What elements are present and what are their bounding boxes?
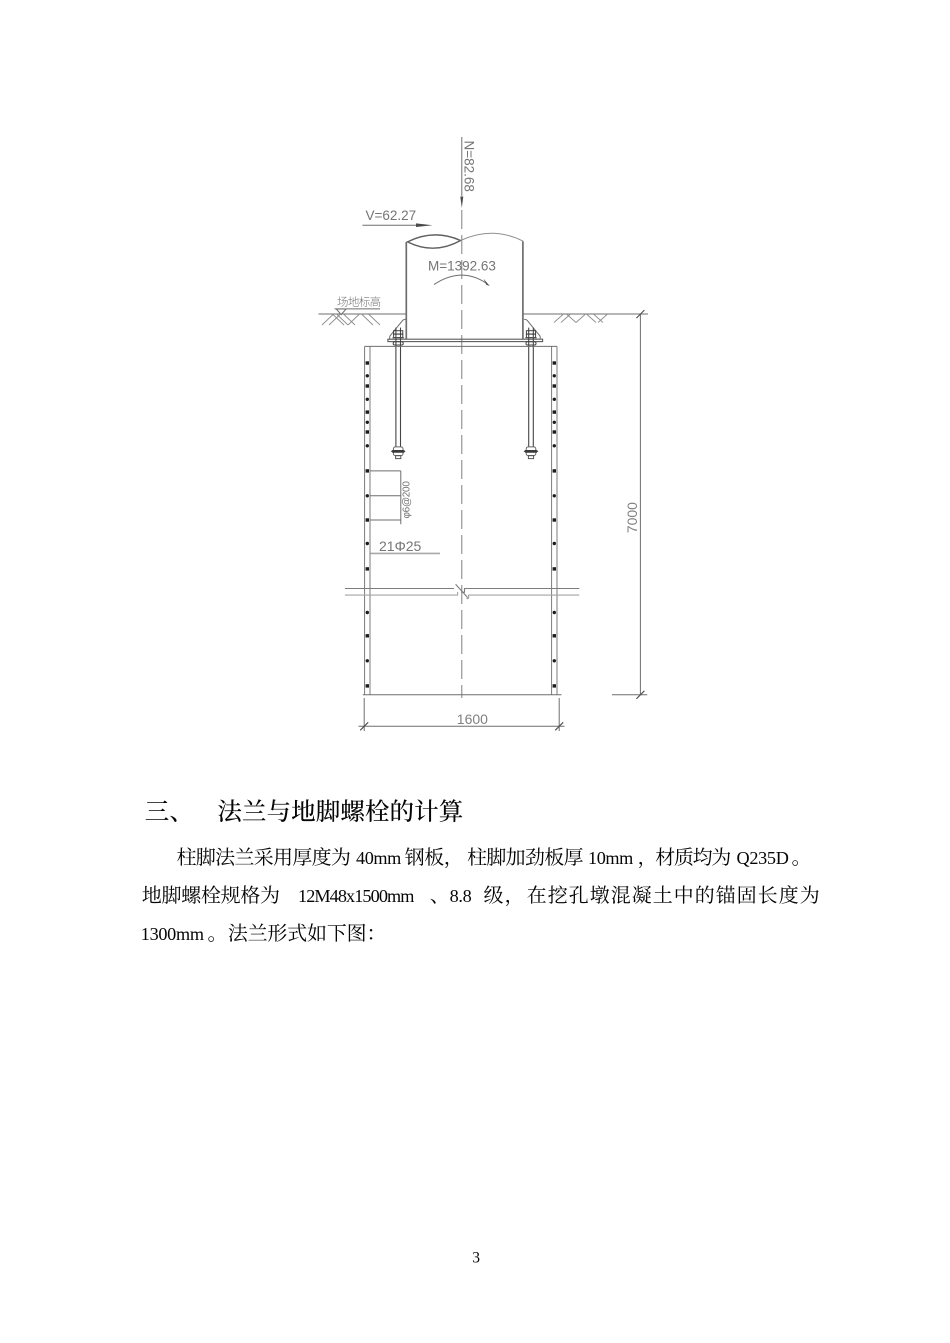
svg-text:8.8: 8.8: [450, 886, 472, 906]
svg-text:φ6@200: φ6@200: [401, 481, 412, 519]
svg-text:40mm: 40mm: [356, 848, 401, 868]
svg-text:V=62.27: V=62.27: [366, 208, 417, 223]
svg-text:N=82.68: N=82.68: [462, 141, 477, 192]
svg-text:Q235D: Q235D: [737, 848, 789, 868]
svg-text:3: 3: [472, 1249, 480, 1266]
svg-text:21Φ25: 21Φ25: [379, 538, 422, 554]
svg-text:12M48x1500mm: 12M48x1500mm: [298, 886, 414, 906]
svg-text:1300mm: 1300mm: [141, 924, 204, 944]
svg-text:7000: 7000: [624, 502, 640, 533]
svg-text:M=1392.63: M=1392.63: [428, 259, 496, 274]
svg-text:1600: 1600: [457, 711, 488, 727]
svg-text:10mm: 10mm: [588, 848, 633, 868]
